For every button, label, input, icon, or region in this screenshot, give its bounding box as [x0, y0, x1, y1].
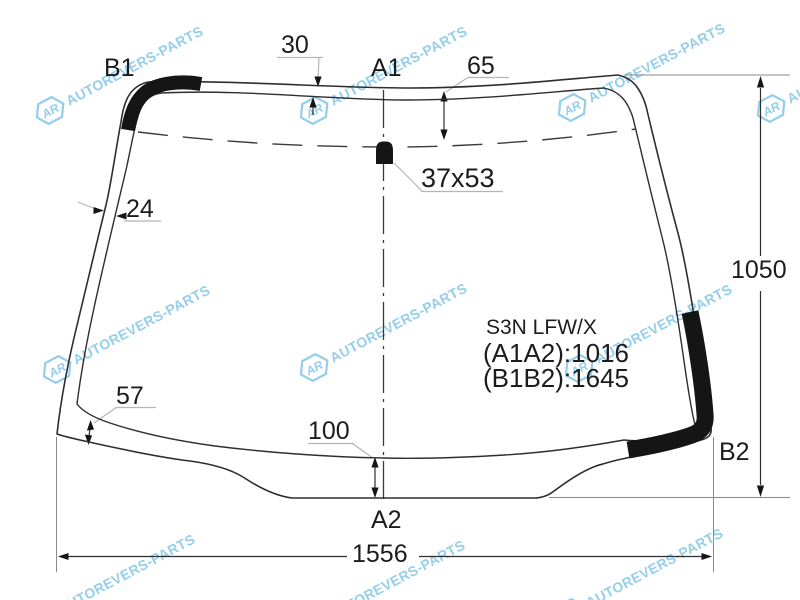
- point-label-a2: A2: [371, 508, 402, 533]
- dim-top-offset: 65: [467, 54, 495, 79]
- part-code: S3N LFW/X: [486, 317, 597, 338]
- point-label-a1: A1: [371, 56, 402, 81]
- spec-b1b2: (B1B2):1645: [483, 365, 629, 391]
- dim-left-band: 24: [126, 197, 154, 222]
- dimension-lines: [61, 88, 761, 557]
- dim-height: 1050: [731, 258, 787, 283]
- dim-mount-size: 37x53: [421, 165, 495, 192]
- dim-width: 1556: [352, 542, 408, 567]
- corner-band-b2: [628, 312, 705, 450]
- windshield-diagram: AR AUTOREVERS-PARTS AR AUTOREVERS-PARTS …: [0, 0, 800, 600]
- dim-corner-band: 57: [116, 384, 144, 409]
- dimension-arrows: [58, 76, 764, 560]
- dim-bottom-band: 100: [308, 419, 350, 444]
- point-label-b2: B2: [719, 440, 750, 465]
- mirror-mount: [376, 142, 393, 165]
- dim-top-band: 30: [281, 33, 309, 58]
- point-label-b1: B1: [104, 56, 135, 81]
- corner-band-b1: [128, 82, 201, 130]
